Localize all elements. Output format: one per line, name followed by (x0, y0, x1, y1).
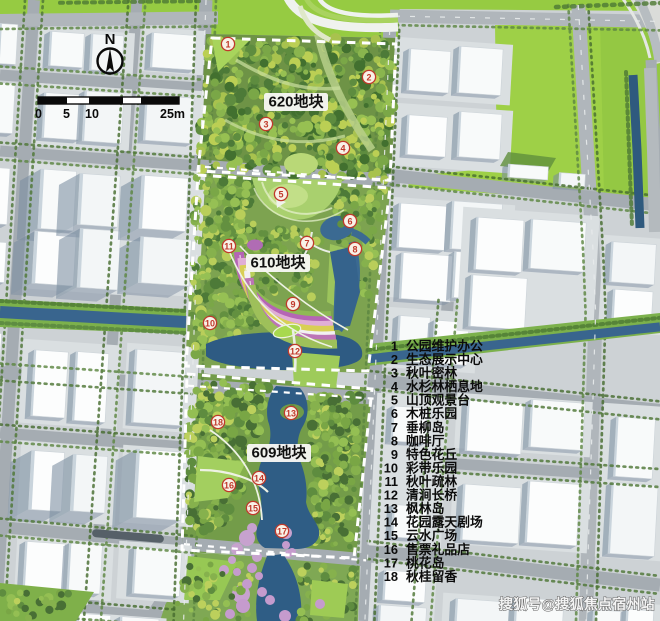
svg-text:609地块: 609地块 (251, 444, 307, 462)
svg-text:5: 5 (63, 107, 70, 121)
svg-text:1: 1 (225, 39, 230, 49)
svg-text:18: 18 (384, 569, 398, 584)
svg-text:搜狐号@搜狐焦点宿州站: 搜狐号@搜狐焦点宿州站 (499, 596, 655, 612)
svg-text:14: 14 (254, 473, 264, 483)
svg-text:7: 7 (304, 238, 309, 248)
svg-text:9: 9 (290, 299, 295, 309)
svg-text:6: 6 (347, 216, 352, 226)
svg-text:10: 10 (85, 107, 99, 121)
svg-text:17: 17 (277, 526, 287, 536)
svg-text:12: 12 (290, 346, 300, 356)
svg-text:3: 3 (263, 119, 268, 129)
svg-text:5: 5 (278, 189, 283, 199)
svg-text:13: 13 (286, 408, 296, 418)
svg-text:610地块: 610地块 (250, 254, 306, 272)
svg-text:8: 8 (352, 244, 357, 254)
svg-text:620地块: 620地块 (268, 93, 324, 111)
svg-text:4: 4 (340, 143, 345, 153)
svg-text:10: 10 (205, 318, 215, 328)
svg-text:秋桂留香: 秋桂留香 (406, 569, 457, 584)
svg-text:0: 0 (35, 107, 42, 121)
svg-text:11: 11 (224, 241, 234, 251)
svg-text:2: 2 (366, 72, 371, 82)
svg-text:16: 16 (224, 480, 234, 490)
svg-text:N: N (105, 31, 116, 48)
svg-text:18: 18 (213, 417, 223, 427)
svg-text:25m: 25m (160, 107, 185, 121)
svg-text:15: 15 (248, 503, 258, 513)
